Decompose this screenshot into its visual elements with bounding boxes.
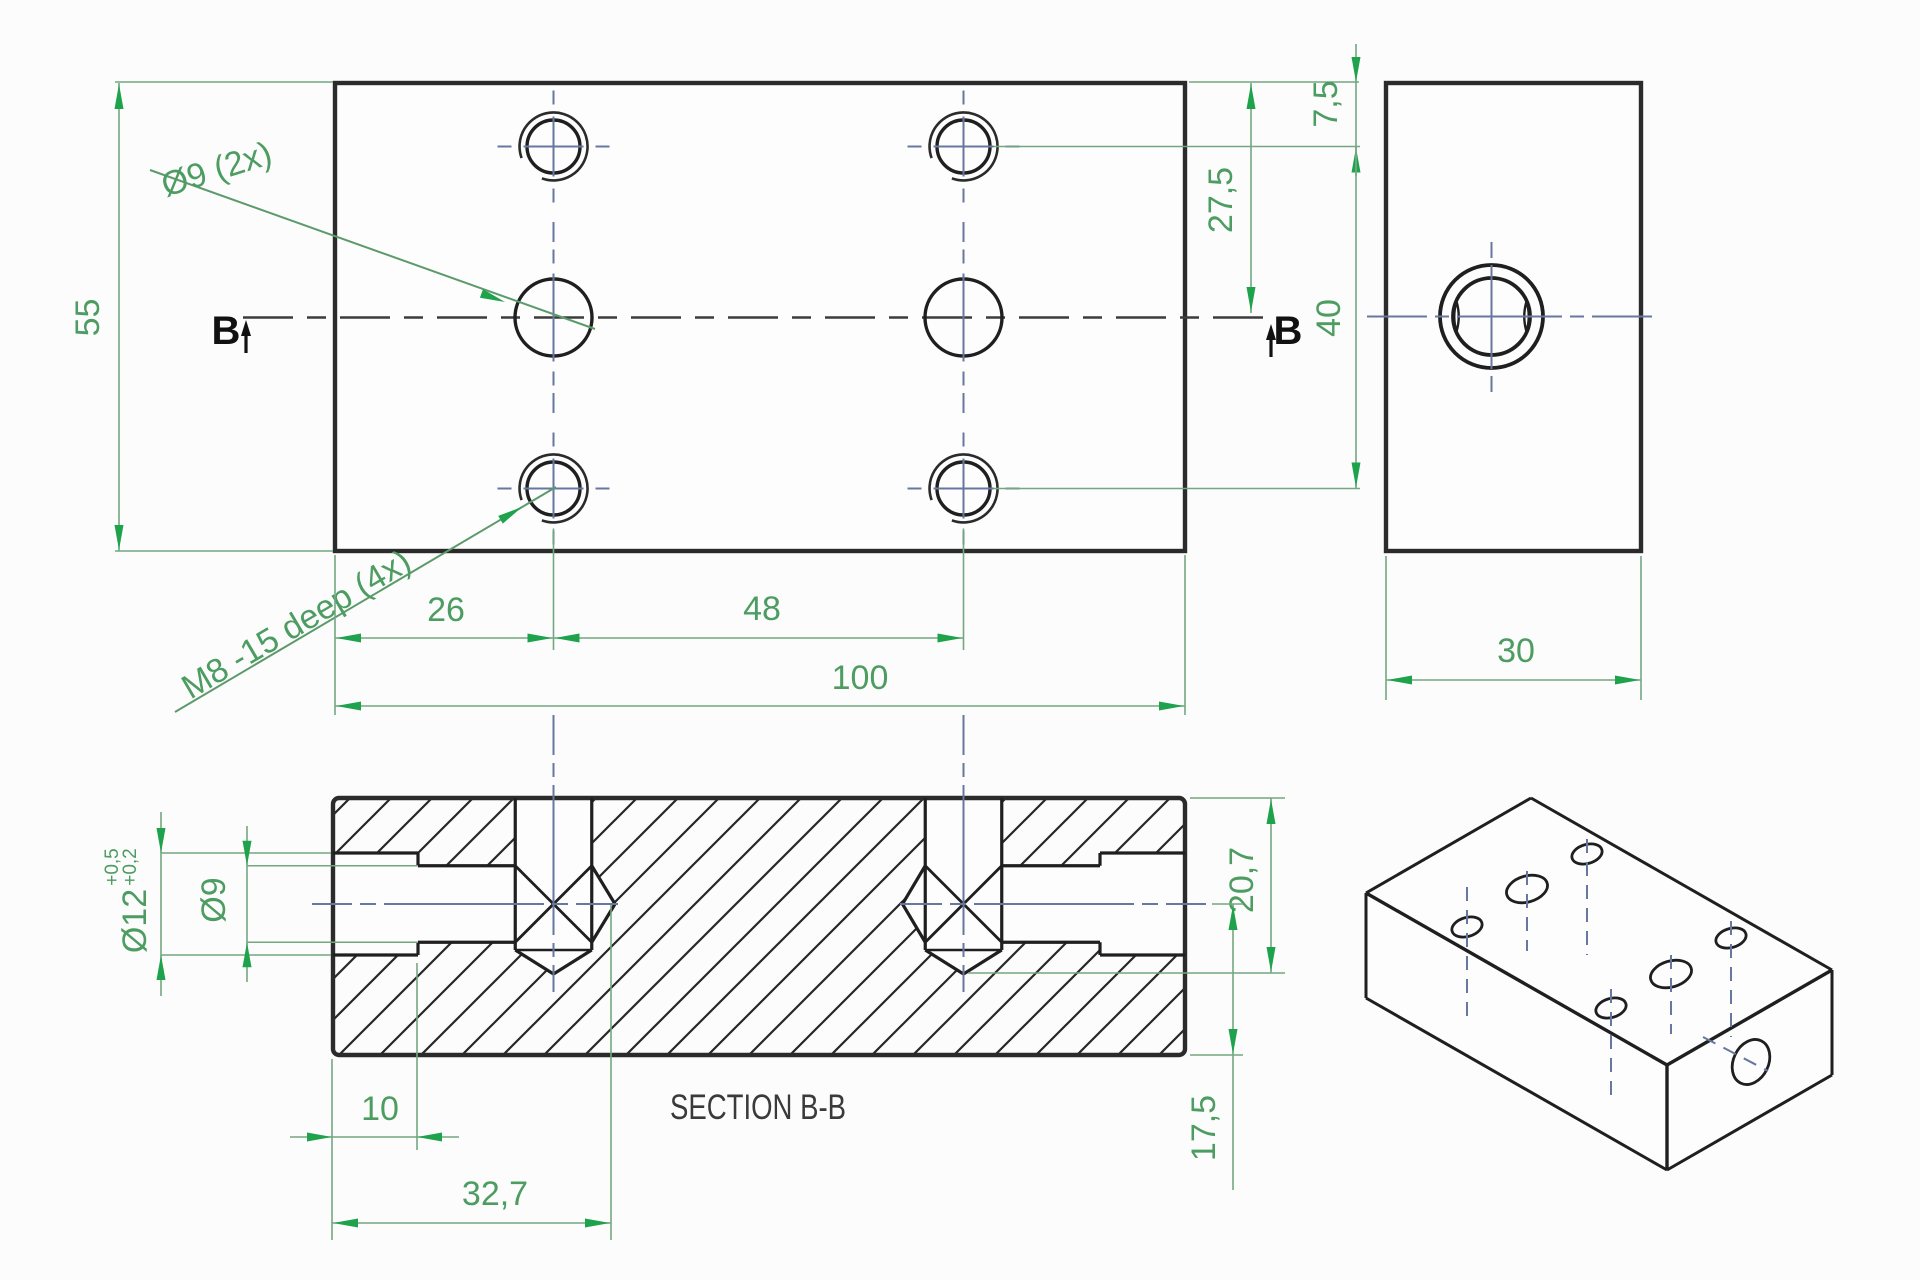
svg-text:27,5: 27,5 <box>1202 167 1240 233</box>
svg-text:48: 48 <box>743 590 781 628</box>
svg-text:26: 26 <box>427 591 465 629</box>
svg-text:17,5: 17,5 <box>1185 1095 1223 1161</box>
svg-text:40: 40 <box>1310 299 1348 337</box>
svg-text:7,5: 7,5 <box>1307 80 1345 127</box>
svg-text:Ø12: Ø12 <box>116 889 154 953</box>
svg-text:20,7: 20,7 <box>1223 847 1261 913</box>
svg-text:B: B <box>212 309 241 353</box>
svg-text:32,7: 32,7 <box>462 1175 528 1213</box>
svg-text:Ø9: Ø9 <box>195 877 233 922</box>
svg-text:+0,2: +0,2 <box>120 848 141 886</box>
svg-text:55: 55 <box>69 299 107 337</box>
svg-text:SECTION B-B: SECTION B-B <box>670 1088 846 1127</box>
svg-text:30: 30 <box>1497 632 1535 670</box>
svg-text:B: B <box>1274 309 1303 353</box>
svg-text:100: 100 <box>832 659 889 697</box>
svg-text:10: 10 <box>361 1090 399 1128</box>
